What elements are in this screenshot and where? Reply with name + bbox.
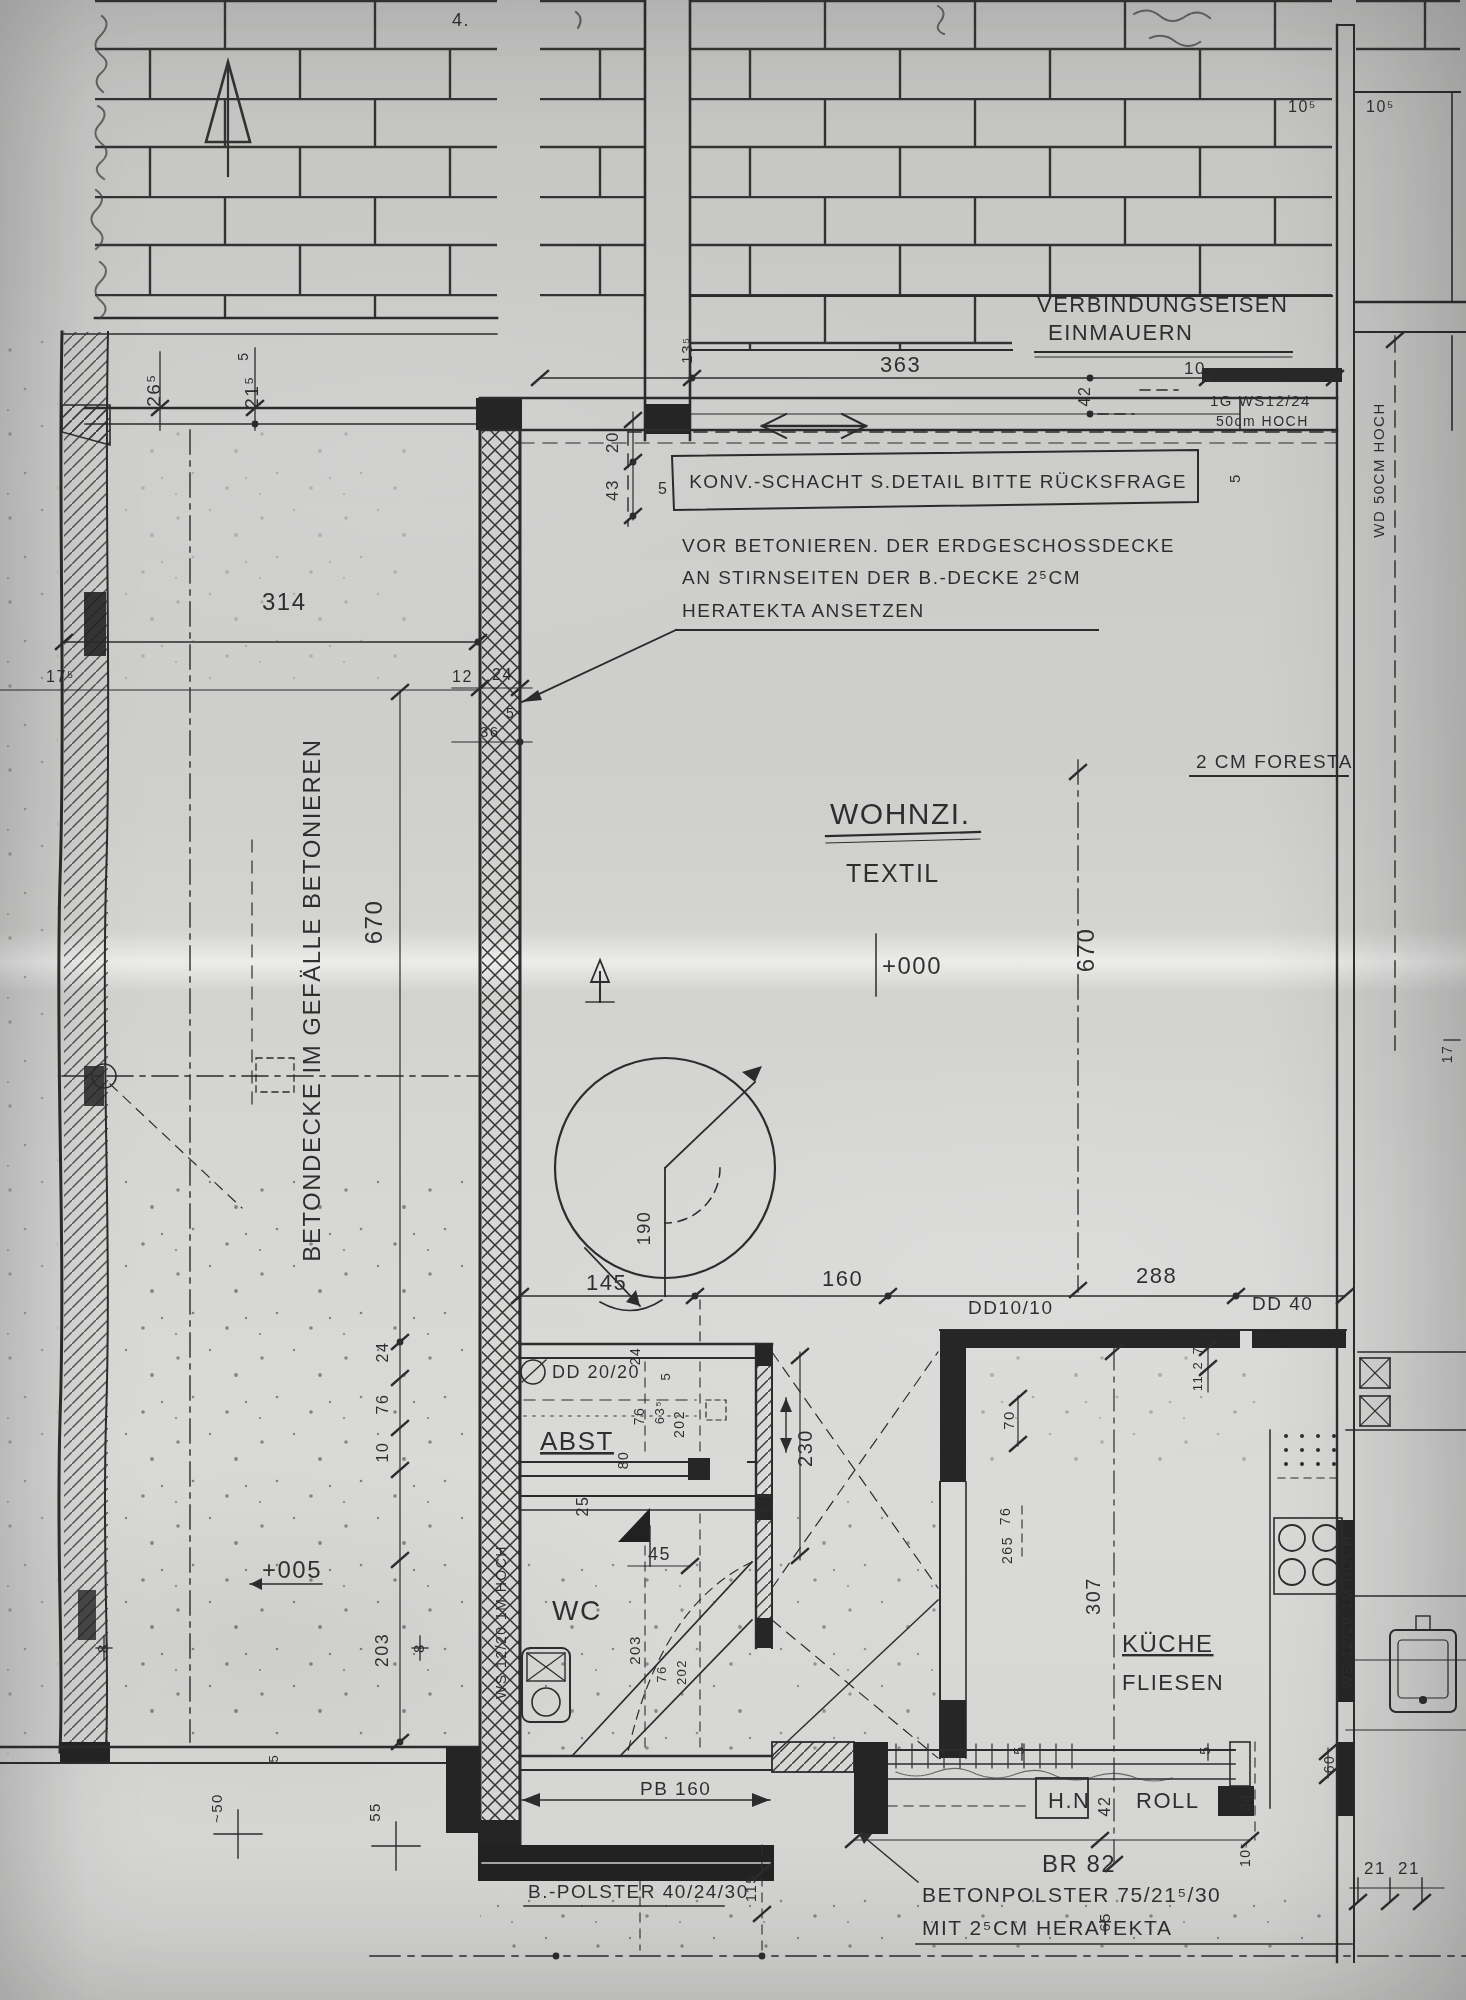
dim-13-5: 13⁵ — [678, 336, 695, 363]
dim-21a: 21 — [1364, 1859, 1386, 1878]
dim-265: 265 — [999, 1536, 1015, 1564]
wall-tag-ws1224-h: 50cm HOCH — [1216, 413, 1309, 429]
dim-160: 160 — [822, 1266, 863, 1291]
wall-tag-ws-right: WS 12/20 1M HOCH — [1339, 1535, 1355, 1689]
dim-5c: 5 — [1226, 473, 1243, 483]
dim-203b: 203 — [626, 1635, 643, 1665]
note-konv-schacht: KONV.-SCHACHT S.DETAIL BITTE RÜCKSFRAGE — [689, 471, 1187, 492]
sink-icon — [1390, 1616, 1456, 1712]
dim-42b: 42 — [1096, 1796, 1113, 1817]
dim-5a: 5 — [235, 351, 251, 360]
note-b-polster: B.-POLSTER 40/24/30 — [528, 1881, 749, 1902]
duct-column — [645, 0, 690, 440]
blueprint-scan: VERBINDUNGSEISEN EINMAUERN KONV.-SCHACHT… — [0, 0, 1466, 2000]
dim-12: 12 — [452, 668, 473, 685]
dim-55: 55 — [366, 1802, 383, 1822]
wall-tag-dd40: DD 40 — [1252, 1293, 1313, 1314]
note-betonieren-2: AN STIRNSEITEN DER B.-DECKE 2⁵CM — [682, 567, 1081, 588]
dim-76b: 76 — [631, 1407, 647, 1426]
dim-50: ~50 — [208, 1793, 225, 1823]
dim-10-5c: 10⁵ — [1237, 1841, 1253, 1867]
dim-10: 10 — [1184, 359, 1206, 378]
dim-24a: 24 — [492, 666, 513, 683]
wall-tag-wd50: WD 50CM HOCH — [1370, 402, 1387, 538]
note-betonpolster-1: BETONPOLSTER 75/21⁵/30 — [922, 1883, 1221, 1906]
note-betonieren-3: HERATEKTA ANSETZEN — [682, 600, 925, 621]
counter-dots — [1284, 1434, 1336, 1466]
right-room — [1387, 333, 1460, 1050]
room-floor-wohnzimmer: TEXTIL — [846, 859, 940, 887]
dim-203a: 203 — [372, 1633, 392, 1668]
dim-43: 43 — [603, 479, 622, 501]
dim-10-5a: 10⁵ — [1288, 98, 1317, 115]
dim-230: 230 — [794, 1429, 816, 1467]
dim-202a: 202 — [671, 1410, 687, 1438]
dim-10-5b: 10⁵ — [1366, 98, 1395, 115]
dim-63-5: 63⁵ — [652, 1400, 667, 1424]
dim-60: 60 — [1321, 1755, 1337, 1774]
wall-tag-ws-left: WS 12/20 1M HOCH — [493, 1545, 509, 1699]
dim-670-right: 670 — [1072, 928, 1099, 973]
note-hn: H.N — [1048, 1788, 1090, 1813]
dim-670-left: 670 — [360, 900, 387, 945]
dim-5e: 5 — [658, 1372, 673, 1381]
west-exterior-wall — [0, 332, 110, 1764]
elevation-wohnzimmer: +000 — [882, 952, 942, 979]
dim-314: 314 — [262, 588, 307, 615]
dim-5f: 5 — [266, 1754, 281, 1763]
handwriting-note: 4. — [452, 10, 470, 30]
dim-8b: 8 — [410, 1643, 427, 1653]
dim-5d: 5 — [506, 705, 515, 721]
dim-42a: 42 — [1076, 386, 1093, 407]
wall-tag-dd1010: DD10/10 — [968, 1297, 1054, 1318]
note-leader — [522, 630, 1098, 702]
dim-21b: 21 — [1398, 1859, 1420, 1878]
dim-36: 36 — [480, 723, 500, 740]
wall-tag-ws1224: 1G WS12/24 — [1210, 392, 1311, 409]
wohnzimmer-symbols — [586, 760, 1348, 1297]
dim-7: 7 — [1190, 1346, 1205, 1355]
dim-70: 70 — [1000, 1410, 1017, 1430]
dim-5b: 5 — [658, 480, 668, 497]
dim-24d: 24 — [1237, 1793, 1253, 1812]
dim-76a: 76 — [374, 1394, 391, 1415]
kitchen-block — [940, 1330, 1466, 1871]
dim-202b: 202 — [674, 1659, 689, 1685]
dim-190: 190 — [634, 1211, 654, 1246]
dim-17: 17 — [1439, 1045, 1455, 1064]
dim-65: 65 — [1096, 1912, 1113, 1932]
room-label-abst: ABST — [540, 1426, 614, 1456]
note-verbindungseisen-2: EINMAUERN — [1048, 320, 1194, 345]
room-floor-kueche: FLIESEN — [1122, 1670, 1224, 1695]
note-betonieren-1: VOR BETONIEREN. DER ERDGESCHOSSDECKE — [682, 535, 1175, 556]
dim-307: 307 — [1082, 1577, 1104, 1615]
dim-17-5: 17⁵ — [46, 668, 75, 685]
dim-80: 80 — [615, 1451, 631, 1470]
dim-24b: 24 — [374, 1342, 391, 1363]
dim-25: 25 — [574, 1496, 591, 1517]
hall-door-swings — [772, 1349, 938, 1758]
dim-76c: 76 — [654, 1665, 669, 1682]
dim-5h: 5 — [1197, 1745, 1213, 1754]
note-pb160: PB 160 — [640, 1778, 711, 1799]
dim-21-5: 21⁵ — [241, 375, 262, 409]
dim-26-5: 26⁵ — [143, 373, 164, 407]
room-label-wc: WC — [552, 1595, 602, 1626]
dim-10b: 10 — [374, 1442, 391, 1463]
note-br82: BR 82 — [1042, 1850, 1116, 1877]
note-foresta: 2 CM FORESTA — [1196, 751, 1353, 772]
room-label-kueche: KÜCHE — [1122, 1630, 1214, 1657]
dim-45: 45 — [648, 1544, 671, 1564]
room-label-wohnzimmer: WOHNZI. — [830, 797, 970, 830]
floor-plan-drawing: VERBINDUNGSEISEN EINMAUERN KONV.-SCHACHT… — [0, 0, 1466, 2000]
dim-8a: 8 — [94, 1643, 111, 1653]
dim-145: 145 — [586, 1270, 627, 1295]
dim-288: 288 — [1136, 1263, 1177, 1288]
dim-115: 115 — [742, 1874, 759, 1902]
note-betonpolster-2: MIT 2⁵CM HERATEKTA — [922, 1916, 1172, 1939]
dim-363: 363 — [880, 352, 921, 377]
note-betondecke: BETONDECKE IM GEFÄLLE BETONIEREN — [298, 738, 325, 1261]
dim-24c: 24 — [627, 1347, 643, 1366]
note-verbindungseisen-1: VERBINDUNGSEISEN — [1037, 292, 1288, 317]
stove-icon — [1274, 1518, 1342, 1594]
note-roll: ROLL — [1136, 1788, 1199, 1813]
dim-11-2: 11.2 — [1190, 1361, 1205, 1391]
elevation-terrasse: +005 — [262, 1556, 322, 1583]
dim-20: 20 — [603, 431, 622, 453]
dim-5g: 5 — [1011, 1745, 1027, 1754]
dim-76d: 76 — [997, 1507, 1013, 1526]
